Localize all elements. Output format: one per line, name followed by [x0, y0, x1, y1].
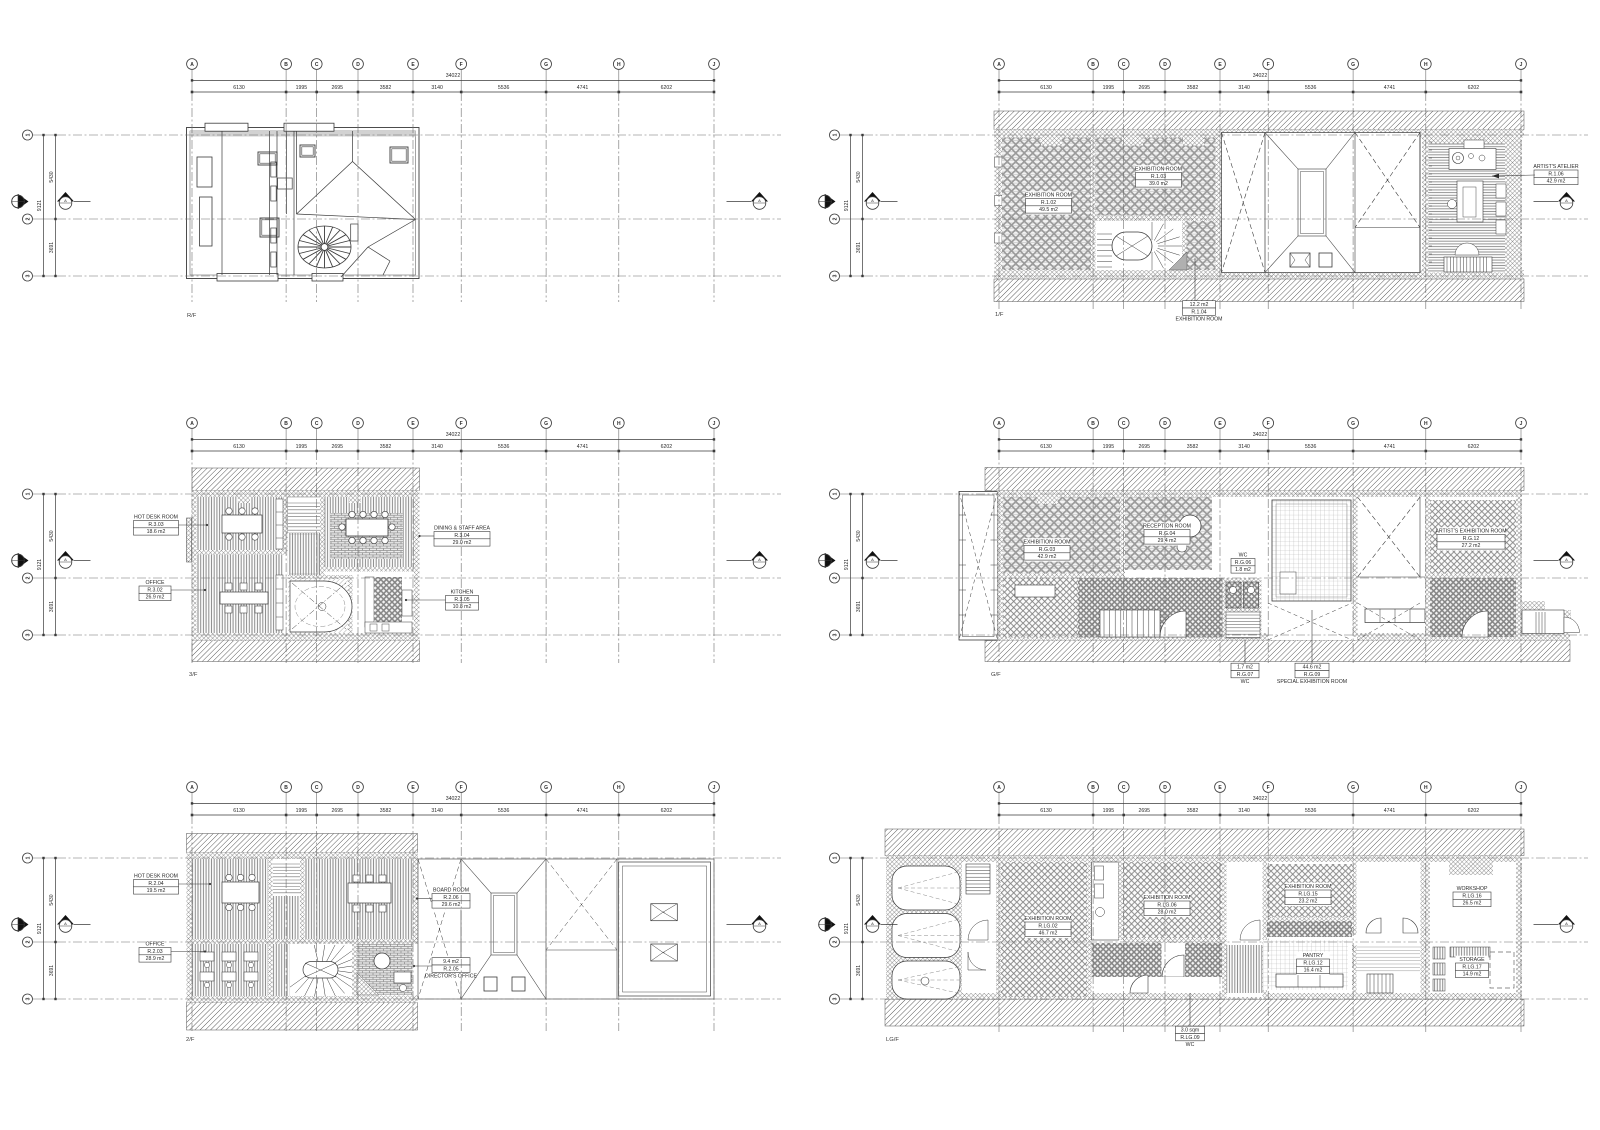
- svg-text:B: B: [284, 421, 288, 427]
- svg-text:A: A: [1565, 557, 1568, 562]
- svg-text:RECEPTION ROOM: RECEPTION ROOM: [1143, 524, 1191, 530]
- svg-text:2: 2: [832, 576, 838, 579]
- svg-text:2/F: 2/F: [186, 1037, 195, 1043]
- svg-text:A: A: [64, 198, 67, 203]
- svg-text:3140: 3140: [1238, 808, 1250, 814]
- svg-text:5536: 5536: [498, 808, 510, 814]
- svg-text:3.0 sqm: 3.0 sqm: [1181, 1028, 1199, 1034]
- svg-text:J: J: [1520, 421, 1523, 427]
- svg-text:R.LG.16: R.LG.16: [1462, 893, 1481, 899]
- svg-text:5536: 5536: [498, 85, 510, 91]
- svg-text:A: A: [758, 921, 761, 926]
- svg-text:19.5 m2: 19.5 m2: [147, 888, 166, 894]
- svg-text:F: F: [1267, 421, 1270, 427]
- svg-text:C: C: [315, 785, 319, 791]
- svg-text:G: G: [544, 421, 548, 427]
- svg-text:2: 2: [832, 217, 838, 220]
- svg-text:16.4 m2: 16.4 m2: [1304, 968, 1323, 974]
- svg-text:6202: 6202: [1468, 444, 1480, 450]
- svg-text:9121: 9121: [844, 559, 850, 570]
- svg-text:R.1.06: R.1.06: [1548, 171, 1563, 177]
- svg-text:1995: 1995: [296, 85, 308, 91]
- svg-text:9121: 9121: [844, 200, 850, 211]
- svg-text:R.LG.17: R.LG.17: [1462, 964, 1481, 970]
- svg-text:A: A: [190, 421, 194, 427]
- svg-text:A: A: [758, 198, 761, 203]
- svg-text:R.3.03: R.3.03: [148, 522, 163, 528]
- svg-text:3140: 3140: [431, 444, 443, 450]
- svg-text:J: J: [1520, 62, 1523, 68]
- svg-text:5536: 5536: [498, 444, 510, 450]
- svg-text:R.LG.06: R.LG.06: [1157, 902, 1176, 908]
- svg-text:A: A: [997, 421, 1001, 427]
- svg-text:G: G: [1351, 421, 1355, 427]
- svg-text:3140: 3140: [431, 808, 443, 814]
- svg-text:1: 1: [25, 133, 31, 136]
- svg-text:28.0 m2: 28.0 m2: [1158, 910, 1177, 916]
- svg-text:H: H: [1424, 421, 1428, 427]
- svg-text:29.0 m2: 29.0 m2: [453, 540, 472, 546]
- svg-text:B: B: [284, 62, 288, 68]
- svg-text:A: A: [1565, 198, 1568, 203]
- svg-text:A: A: [190, 785, 194, 791]
- svg-text:WC: WC: [1186, 1042, 1195, 1048]
- svg-text:6130: 6130: [233, 85, 245, 91]
- svg-text:R.1.03: R.1.03: [1151, 174, 1166, 180]
- svg-text:4741: 4741: [1384, 85, 1396, 91]
- svg-text:ARTIST'S EXHIBITION ROOM: ARTIST'S EXHIBITION ROOM: [1435, 529, 1506, 535]
- svg-text:B: B: [1091, 785, 1095, 791]
- svg-text:12.2 m2: 12.2 m2: [1190, 302, 1209, 308]
- svg-text:R.G.03: R.G.03: [1039, 547, 1056, 553]
- svg-text:R/F: R/F: [187, 313, 197, 319]
- svg-text:B: B: [284, 785, 288, 791]
- svg-text:9121: 9121: [37, 559, 43, 570]
- svg-text:F: F: [460, 421, 463, 427]
- svg-text:R.2.06: R.2.06: [443, 895, 458, 901]
- svg-text:EXHIBITION ROOM: EXHIBITION ROOM: [1176, 317, 1223, 323]
- svg-text:R.LG.15: R.LG.15: [1298, 891, 1317, 897]
- svg-text:G/F: G/F: [991, 672, 1001, 678]
- svg-text:34022: 34022: [446, 432, 461, 438]
- svg-text:F: F: [460, 62, 463, 68]
- svg-text:2: 2: [25, 940, 31, 943]
- svg-text:3691: 3691: [856, 242, 862, 253]
- svg-text:34022: 34022: [446, 73, 461, 79]
- svg-text:EXHIBITION ROOM: EXHIBITION ROOM: [1144, 895, 1191, 901]
- svg-text:A: A: [997, 785, 1001, 791]
- svg-text:4741: 4741: [577, 808, 589, 814]
- svg-text:1995: 1995: [296, 444, 308, 450]
- svg-text:3: 3: [832, 633, 838, 636]
- svg-text:34022: 34022: [1253, 796, 1268, 802]
- svg-text:HOT DESK ROOM: HOT DESK ROOM: [134, 874, 178, 880]
- svg-text:A: A: [997, 62, 1001, 68]
- svg-text:34022: 34022: [1253, 432, 1268, 438]
- svg-text:34022: 34022: [446, 796, 461, 802]
- svg-text:G: G: [1351, 62, 1355, 68]
- svg-text:49.5 m2: 49.5 m2: [1039, 207, 1058, 213]
- svg-text:5536: 5536: [1305, 808, 1317, 814]
- svg-text:C: C: [1122, 421, 1126, 427]
- svg-text:1995: 1995: [1103, 808, 1115, 814]
- svg-text:R.LG.02: R.LG.02: [1038, 923, 1057, 929]
- svg-text:34022: 34022: [1253, 73, 1268, 79]
- svg-text:26.5 m2: 26.5 m2: [1463, 901, 1482, 907]
- svg-text:2695: 2695: [1139, 85, 1151, 91]
- svg-text:R.3.04: R.3.04: [454, 533, 469, 539]
- svg-text:4741: 4741: [577, 85, 589, 91]
- svg-text:2695: 2695: [1139, 444, 1151, 450]
- svg-text:R.2.03: R.2.03: [147, 949, 162, 955]
- svg-text:3140: 3140: [1238, 444, 1250, 450]
- svg-text:2695: 2695: [332, 808, 344, 814]
- svg-text:3582: 3582: [1187, 444, 1199, 450]
- svg-text:EXHIBITION ROOM: EXHIBITION ROOM: [1135, 167, 1182, 173]
- svg-text:R.G.04: R.G.04: [1159, 531, 1176, 537]
- svg-text:6130: 6130: [233, 808, 245, 814]
- svg-text:5430: 5430: [49, 530, 55, 541]
- svg-text:4741: 4741: [1384, 444, 1396, 450]
- svg-text:OFFICE: OFFICE: [145, 580, 165, 586]
- svg-text:18.6 m2: 18.6 m2: [147, 529, 166, 535]
- svg-text:R.G.12: R.G.12: [1463, 536, 1480, 542]
- svg-text:HOT DESK ROOM: HOT DESK ROOM: [134, 515, 178, 521]
- svg-text:D: D: [1163, 785, 1167, 791]
- svg-text:4741: 4741: [577, 444, 589, 450]
- svg-text:H: H: [1424, 785, 1428, 791]
- svg-text:OFFICE: OFFICE: [145, 942, 165, 948]
- svg-text:F: F: [460, 785, 463, 791]
- svg-text:9121: 9121: [37, 200, 43, 211]
- svg-text:3582: 3582: [380, 85, 392, 91]
- svg-text:1.7 m2: 1.7 m2: [1237, 665, 1253, 671]
- svg-text:5430: 5430: [856, 894, 862, 905]
- svg-text:EXHIBITION ROOM: EXHIBITION ROOM: [1025, 916, 1072, 922]
- svg-text:10.8 m2: 10.8 m2: [453, 604, 472, 610]
- svg-text:EXHIBITION ROOM: EXHIBITION ROOM: [1285, 884, 1332, 890]
- svg-text:C: C: [1122, 785, 1126, 791]
- svg-text:R.G.06: R.G.06: [1235, 560, 1252, 566]
- svg-text:2: 2: [832, 940, 838, 943]
- svg-text:B: B: [1091, 62, 1095, 68]
- svg-text:6130: 6130: [233, 444, 245, 450]
- svg-text:28.9 m2: 28.9 m2: [146, 956, 165, 962]
- svg-text:KITCHEN: KITCHEN: [451, 590, 474, 596]
- svg-text:R.LG.12: R.LG.12: [1303, 960, 1322, 966]
- svg-text:3691: 3691: [856, 601, 862, 612]
- svg-text:3: 3: [832, 274, 838, 277]
- svg-text:A: A: [1565, 921, 1568, 926]
- svg-text:H: H: [617, 421, 621, 427]
- svg-text:R.3.02: R.3.02: [147, 587, 162, 593]
- svg-text:3140: 3140: [1238, 85, 1250, 91]
- svg-text:27.2 m2: 27.2 m2: [1462, 543, 1481, 549]
- svg-text:LG/F: LG/F: [886, 1037, 899, 1043]
- svg-text:42.9 m2: 42.9 m2: [1547, 179, 1566, 185]
- svg-text:A: A: [758, 557, 761, 562]
- svg-text:EXHIBITION ROOM: EXHIBITION ROOM: [1024, 540, 1071, 546]
- svg-text:F: F: [1267, 62, 1270, 68]
- svg-text:STORAGE: STORAGE: [1459, 957, 1485, 963]
- svg-text:3/F: 3/F: [189, 672, 198, 678]
- svg-text:42.9 m2: 42.9 m2: [1038, 554, 1057, 560]
- svg-text:R.LG.09: R.LG.09: [1180, 1035, 1199, 1041]
- svg-text:G: G: [544, 785, 548, 791]
- svg-text:3: 3: [25, 633, 31, 636]
- svg-text:6202: 6202: [661, 85, 673, 91]
- svg-text:44.6 m2: 44.6 m2: [1303, 665, 1322, 671]
- svg-text:14.9 m2: 14.9 m2: [1463, 972, 1482, 978]
- svg-text:6202: 6202: [1468, 85, 1480, 91]
- svg-text:1: 1: [832, 856, 838, 859]
- svg-text:6130: 6130: [1040, 808, 1052, 814]
- svg-text:D: D: [356, 421, 360, 427]
- svg-text:1/F: 1/F: [995, 312, 1004, 318]
- svg-text:3: 3: [25, 997, 31, 1000]
- svg-text:3: 3: [25, 274, 31, 277]
- svg-text:2695: 2695: [332, 444, 344, 450]
- svg-text:B: B: [1091, 421, 1095, 427]
- svg-text:3: 3: [832, 997, 838, 1000]
- svg-text:3140: 3140: [431, 85, 443, 91]
- svg-text:4741: 4741: [1384, 808, 1396, 814]
- svg-text:1995: 1995: [1103, 85, 1115, 91]
- svg-text:6202: 6202: [661, 444, 673, 450]
- svg-text:5536: 5536: [1305, 444, 1317, 450]
- svg-text:5536: 5536: [1305, 85, 1317, 91]
- svg-text:5430: 5430: [856, 171, 862, 182]
- svg-text:A: A: [64, 921, 67, 926]
- svg-text:WC: WC: [1239, 553, 1248, 559]
- svg-text:G: G: [544, 62, 548, 68]
- svg-text:C: C: [315, 62, 319, 68]
- svg-text:WORKSHOP: WORKSHOP: [1457, 886, 1488, 892]
- svg-text:H: H: [617, 62, 621, 68]
- svg-text:1995: 1995: [296, 808, 308, 814]
- svg-text:3691: 3691: [49, 242, 55, 253]
- svg-text:46.7 m2: 46.7 m2: [1039, 931, 1058, 937]
- svg-text:A: A: [871, 921, 874, 926]
- svg-text:J: J: [713, 421, 716, 427]
- svg-text:3582: 3582: [380, 808, 392, 814]
- svg-text:1.8 m2: 1.8 m2: [1235, 567, 1251, 573]
- svg-text:H: H: [1424, 62, 1428, 68]
- svg-text:6130: 6130: [1040, 444, 1052, 450]
- svg-text:3582: 3582: [1187, 85, 1199, 91]
- svg-text:2695: 2695: [332, 85, 344, 91]
- svg-text:A: A: [871, 557, 874, 562]
- svg-text:2: 2: [25, 576, 31, 579]
- svg-text:C: C: [315, 421, 319, 427]
- svg-text:9121: 9121: [844, 923, 850, 934]
- svg-text:C: C: [1122, 62, 1126, 68]
- svg-text:D: D: [1163, 421, 1167, 427]
- svg-text:SPECIAL EXHIBITION ROOM: SPECIAL EXHIBITION ROOM: [1277, 679, 1347, 685]
- svg-text:23.2 m2: 23.2 m2: [1299, 899, 1318, 905]
- svg-text:ARTIST'S ATELIER: ARTIST'S ATELIER: [1533, 164, 1578, 170]
- svg-text:9.4 m2: 9.4 m2: [443, 959, 459, 965]
- svg-text:1: 1: [25, 492, 31, 495]
- svg-text:D: D: [356, 785, 360, 791]
- svg-text:J: J: [713, 785, 716, 791]
- svg-text:R.1.04: R.1.04: [1191, 309, 1206, 315]
- svg-text:1995: 1995: [1103, 444, 1115, 450]
- svg-text:R.3.05: R.3.05: [454, 597, 469, 603]
- svg-text:1: 1: [832, 492, 838, 495]
- svg-text:R.2.04: R.2.04: [148, 881, 163, 887]
- svg-text:A: A: [190, 62, 194, 68]
- svg-text:1: 1: [832, 133, 838, 136]
- svg-text:1: 1: [25, 856, 31, 859]
- svg-text:29.6 m2: 29.6 m2: [442, 902, 461, 908]
- svg-text:3582: 3582: [380, 444, 392, 450]
- svg-text:2: 2: [25, 217, 31, 220]
- svg-text:R.G.07: R.G.07: [1237, 672, 1254, 678]
- svg-text:9121: 9121: [37, 923, 43, 934]
- svg-text:3691: 3691: [856, 965, 862, 976]
- svg-text:5430: 5430: [49, 171, 55, 182]
- svg-text:R.2.05: R.2.05: [443, 966, 458, 972]
- svg-text:A: A: [64, 557, 67, 562]
- svg-text:PANTRY: PANTRY: [1303, 953, 1324, 959]
- svg-text:J: J: [1520, 785, 1523, 791]
- svg-text:A: A: [871, 198, 874, 203]
- svg-text:3582: 3582: [1187, 808, 1199, 814]
- svg-text:3691: 3691: [49, 601, 55, 612]
- svg-text:5430: 5430: [49, 894, 55, 905]
- svg-text:2695: 2695: [1139, 808, 1151, 814]
- svg-text:6130: 6130: [1040, 85, 1052, 91]
- svg-text:5430: 5430: [856, 530, 862, 541]
- svg-text:WC: WC: [1241, 679, 1250, 685]
- svg-text:6202: 6202: [661, 808, 673, 814]
- svg-text:6202: 6202: [1468, 808, 1480, 814]
- svg-text:R.1.02: R.1.02: [1041, 200, 1056, 206]
- svg-text:G: G: [1351, 785, 1355, 791]
- svg-text:F: F: [1267, 785, 1270, 791]
- svg-text:D: D: [356, 62, 360, 68]
- svg-text:H: H: [617, 785, 621, 791]
- svg-text:3691: 3691: [49, 965, 55, 976]
- svg-text:J: J: [713, 62, 716, 68]
- svg-text:BOARD ROOM: BOARD ROOM: [433, 888, 469, 894]
- svg-text:26.9 m2: 26.9 m2: [146, 595, 165, 601]
- svg-text:D: D: [1163, 62, 1167, 68]
- svg-text:DINING & STAFF AREA: DINING & STAFF AREA: [434, 526, 490, 532]
- svg-text:EXHIBITION ROOM: EXHIBITION ROOM: [1025, 193, 1072, 199]
- svg-text:DIRECTOR'S OFFICE: DIRECTOR'S OFFICE: [425, 974, 477, 980]
- svg-text:29.4 m2: 29.4 m2: [1158, 538, 1177, 544]
- svg-text:R.G.09: R.G.09: [1304, 672, 1321, 678]
